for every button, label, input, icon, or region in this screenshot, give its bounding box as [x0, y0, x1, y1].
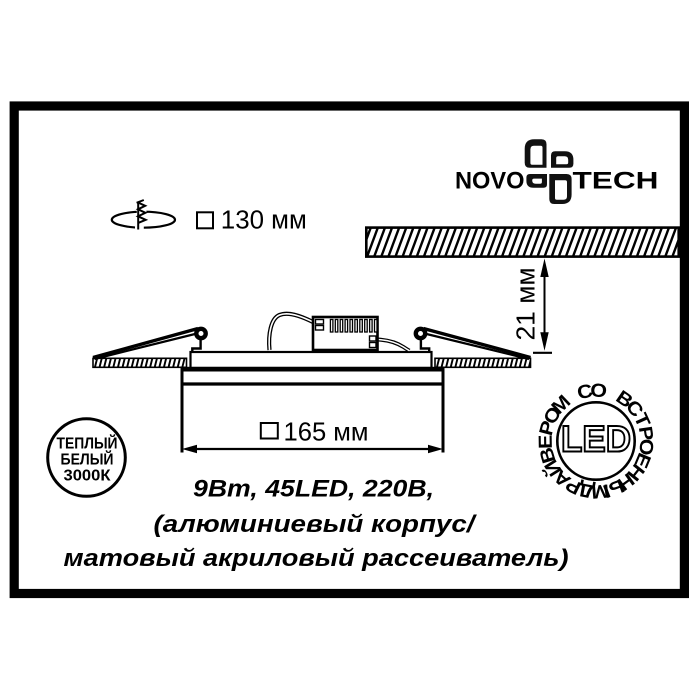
- svg-text:ТЕПЛЫЙ: ТЕПЛЫЙ: [57, 435, 118, 453]
- svg-text:21 мм: 21 мм: [513, 268, 541, 341]
- svg-text:130 мм: 130 мм: [221, 207, 307, 235]
- svg-text:БЕЛЫЙ: БЕЛЫЙ: [61, 451, 114, 469]
- svg-text:9Вт, 45LED, 220В,: 9Вт, 45LED, 220В,: [193, 476, 434, 503]
- svg-text:М: М: [590, 480, 610, 502]
- svg-text:165 мм: 165 мм: [284, 417, 369, 447]
- svg-text:(алюминиевый корпус/: (алюминиевый корпус/: [154, 511, 477, 538]
- svg-text:LED: LED: [561, 418, 631, 460]
- svg-text:3000К: 3000К: [64, 468, 112, 485]
- svg-text:NOVO: NOVO: [455, 168, 525, 195]
- svg-text:TECH: TECH: [573, 168, 659, 195]
- svg-text:матовый акриловый рассеиватель: матовый акриловый рассеиватель): [64, 545, 569, 572]
- svg-text:О: О: [590, 380, 608, 401]
